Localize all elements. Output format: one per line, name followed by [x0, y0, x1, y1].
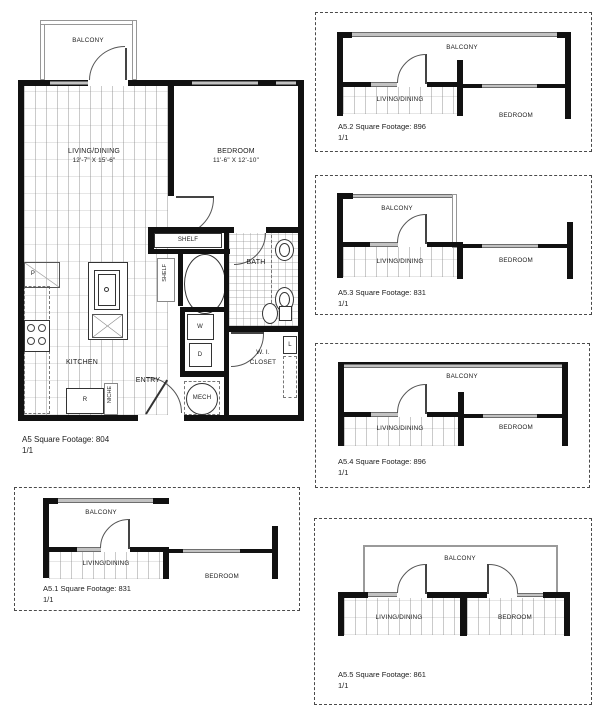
wall-segment: [564, 592, 570, 636]
wall-segment: [460, 598, 467, 636]
floorplan-sheet: BALCONY SHELF SHELF: [0, 0, 611, 720]
door-leaf: [487, 564, 489, 594]
balcony-label: BALCONY: [444, 556, 476, 562]
bedroom-label: BEDROOM: [498, 615, 532, 621]
sheet-number: 1/1: [338, 681, 426, 692]
variant-plan-a5-5: BALCONY LIVING/DINING BEDROOM A5.5 Squar…: [0, 0, 611, 720]
door-leaf: [425, 564, 427, 594]
caption-text: A5.5 Square Footage: 861: [338, 670, 426, 681]
balcony-rail: [363, 545, 558, 595]
window: [368, 592, 397, 597]
window: [517, 593, 543, 597]
living-dining-label: LIVING/DINING: [375, 615, 422, 621]
caption-a5-5: A5.5 Square Footage: 861 1/1: [338, 670, 426, 691]
